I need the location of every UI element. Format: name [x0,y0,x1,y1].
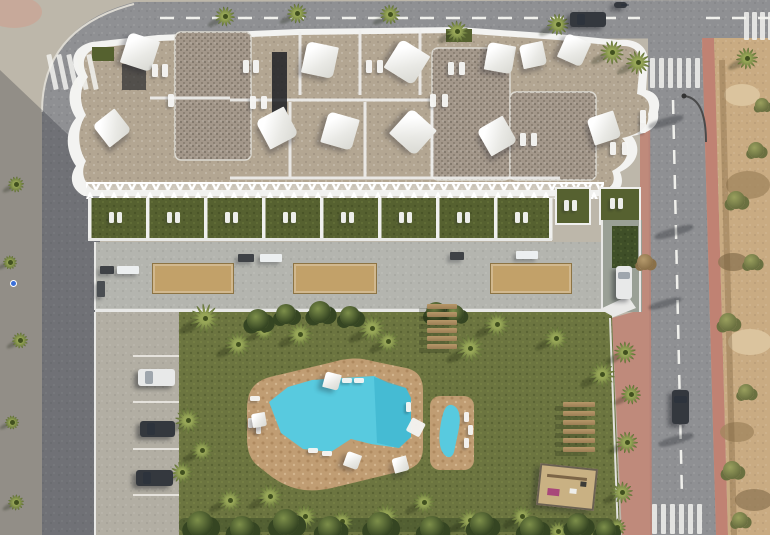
shade-sail [477,116,518,157]
roof-lounger [366,60,372,73]
wood-step [427,336,457,341]
street-palm-shadow [279,12,297,25]
terrace-lounger [117,212,122,223]
street-palm-shadow [0,261,10,270]
roof-lounger [261,96,267,109]
dirt-shrub [755,98,769,112]
garden-palm-shadow [208,499,229,515]
terrace-lounger [572,200,577,211]
shade-sail [557,33,591,67]
aerial-render-viewport [0,0,770,535]
pool-lounger [354,378,364,383]
wood-step [427,344,457,349]
dirt-shrub [748,142,764,158]
terrace-lounger [349,212,354,223]
walkway-bench [238,254,254,262]
roof-lounger [152,64,158,77]
garden-palm-shadow [444,346,469,365]
dirt-shrub [738,384,754,400]
street-palm-shadow [538,23,558,38]
wood-step [427,320,457,325]
playground-slide [547,488,560,496]
terrace-lounger [225,212,230,223]
garden-palm-shadow [246,329,264,342]
garden-palm-shadow [404,501,424,516]
shade-sail [384,39,431,86]
crosswalk-bar [688,504,693,534]
roof-lounger [253,60,259,73]
terrace-lounger [399,212,404,223]
pool-lounger [464,438,469,448]
roof-lounger [622,142,628,155]
roof-lounger [448,62,454,75]
terrace-lounger [610,198,615,209]
walkway-bench [260,254,282,262]
roof-lounger [442,94,448,107]
garden-bench [563,429,595,434]
crosswalk-bar [679,504,684,534]
roof-lounger [520,133,526,146]
playground-seat [569,488,576,494]
walkway-bench [117,266,139,274]
garden-palm-shadow [602,491,622,506]
shade-sail [389,108,437,156]
hedge-shrub [247,309,269,331]
garden-palm-shadow [473,323,496,340]
hedge-shrub [520,516,544,535]
crosswalk-bar [668,58,673,88]
garden-palm-shadow [502,515,522,530]
walkway-bench [450,252,464,260]
car [614,2,627,8]
shade-sail [484,42,516,74]
hedge-shrub [596,520,616,535]
hedge-shrub [367,512,393,535]
sand-planter [152,263,234,294]
shade-sail [320,111,360,151]
roof-lounger [610,142,616,155]
hedge-shrub [340,306,360,326]
hedge-shrub [470,512,494,535]
garden-palm-shadow [276,333,299,350]
roof-lounger [162,64,168,77]
tree-shadow [648,113,685,131]
dirt-shrub [744,254,760,270]
terrace-lounger [291,212,296,223]
hedge-shrub [318,516,342,535]
wood-step [427,328,457,333]
terrace-lounger [515,212,520,223]
garden-palm-shadow [613,393,631,406]
pool-lounger [342,378,352,383]
walkway-bench [97,281,105,297]
shade-sail [255,106,298,149]
dirt-shrub [727,191,745,209]
roof-lounger [377,60,383,73]
roof-lounger [168,94,174,107]
garden-palm-shadow [607,441,627,456]
garden-bench [563,447,595,452]
terrace-lounger [283,212,288,223]
car [140,421,175,437]
garden-bench [563,438,595,443]
pool-lounger [250,396,260,401]
pool-parasol [322,371,342,391]
garden-palm-shadow [246,495,269,512]
playground-beam [547,474,587,481]
terrace-lounger [407,212,412,223]
roof-lounger [430,94,436,107]
terrace-lounger [564,200,569,211]
playground-post [580,481,586,487]
street-palm-shadow [0,421,12,430]
playground [536,463,598,511]
street-palm-shadow [616,61,637,77]
terrace-lounger [175,212,180,223]
shade-sail [519,41,547,69]
sand-planter [293,263,377,294]
walkway-bench [100,266,114,274]
dead-shrub [637,254,653,270]
pool-lounger [468,425,473,435]
garden-palm-shadow [214,343,237,360]
pool-lounger [464,412,469,422]
roof-lounger [531,133,537,146]
garden-palm-shadow [177,316,204,336]
hedge-shrub [187,511,213,535]
garden-palm-shadow [182,449,202,464]
crosswalk-bar [677,58,682,88]
hedge-shrub [309,301,331,323]
car [672,390,689,424]
crosswalk-bar [661,504,666,534]
terrace-lounger [465,212,470,223]
crosswalk-bar [86,54,98,90]
tree-shadow [654,223,695,242]
garden-palm-shadow [368,340,388,355]
terrace-lounger [233,212,238,223]
pool-parasol [251,412,267,428]
tree-shadow [658,431,695,449]
crosswalk-bar [697,504,702,534]
garden-bench [563,402,595,407]
roof-lounger [250,96,256,109]
garden-palm-shadow [346,326,371,345]
pool-lounger [406,402,411,412]
sand-planter [490,263,572,294]
terrace-lounger [109,212,114,223]
shade-sail [301,41,339,79]
scene-objects-layer [0,0,770,535]
crosswalk-bar [695,58,700,88]
crosswalk-bar [760,12,765,40]
car [136,470,173,486]
car [570,12,606,27]
pool-parasol [342,450,361,469]
garden-palm-shadow [448,519,469,535]
shade-sail [92,108,131,147]
crosswalk-bar [670,504,675,534]
terrace-lounger [341,212,346,223]
street-palm-shadow [5,339,19,350]
pool-parasol [391,455,409,473]
dirt-shrub [723,461,741,479]
hedge-shrub [273,509,299,535]
hedge-shrub [420,516,444,535]
terrace-lounger [457,212,462,223]
dirt-shrub [719,313,737,331]
street-palm-shadow [1,183,15,194]
terrace-lounger [167,212,172,223]
street-palm-shadow [372,13,390,26]
crosswalk-bar [650,58,655,88]
roof-lounger [243,60,249,73]
street-palm-shadow [590,51,611,67]
street-palm-shadow [1,501,15,512]
hedge-shrub [276,304,296,324]
crosswalk-bar [686,58,691,88]
wood-step [427,312,457,317]
street-palm-shadow [437,30,457,45]
crosswalk-bar [744,12,749,40]
crosswalk-bar [752,12,757,40]
garden-bench [563,420,595,425]
pool-lounger [322,451,332,456]
terrace-lounger [523,212,528,223]
walkway-bench [516,251,538,259]
pool-lounger [308,448,318,453]
car [616,266,632,299]
shade-sail [586,110,621,145]
garden-palm-shadow [605,351,625,366]
traffic-sign [11,281,16,286]
car [138,369,175,386]
crosswalk-bar [659,58,664,88]
roof-lounger [459,62,465,75]
roof-lounger [640,120,646,133]
tree-shadow [648,295,683,311]
garden-palm-shadow [578,373,601,390]
wood-step [427,304,457,309]
garden-palm-shadow [534,337,555,353]
garden-bench [563,411,595,416]
crosswalk-bar [652,504,657,534]
street-palm-shadow [727,57,747,72]
hedge-shrub [567,513,589,535]
terrace-lounger [618,198,623,209]
street-palm-shadow [207,15,225,28]
dirt-shrub [732,512,748,528]
hedge-shrub [230,516,254,535]
